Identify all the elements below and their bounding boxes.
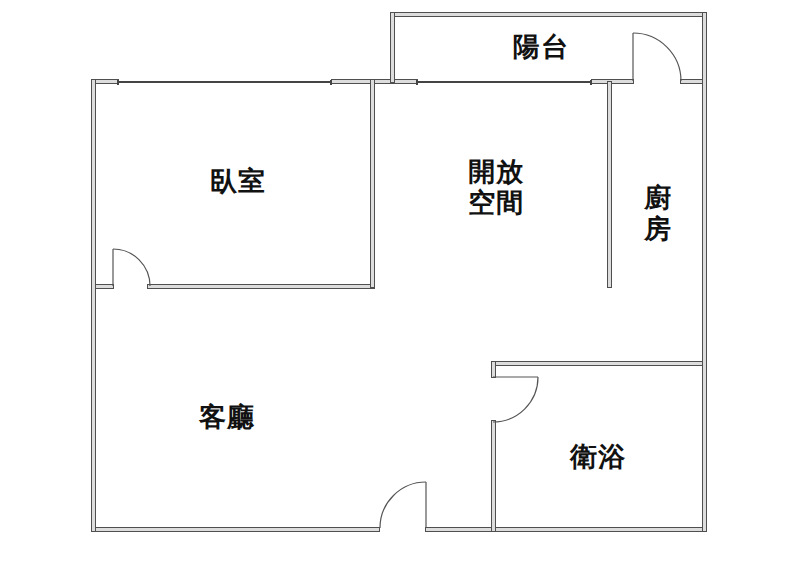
room-label-balcony: 陽台: [513, 31, 569, 62]
room-label-bathroom: 衛浴: [570, 441, 626, 472]
balcony-door-arc: [633, 33, 681, 81]
bedroom-door-arc: [113, 249, 150, 286]
door-swing-overlay: [0, 0, 800, 564]
room-label-bedroom: 臥室: [210, 165, 266, 196]
floor-plan: 陽台 臥室 開放 空間 廚 房 客廳 衛浴: [0, 0, 800, 564]
bathroom-door-arc: [493, 377, 538, 422]
room-label-living-room: 客廳: [199, 401, 255, 432]
entry-door-arc: [380, 482, 426, 528]
room-label-open-space: 開放 空間: [468, 156, 524, 218]
room-label-kitchen: 廚 房: [644, 182, 672, 244]
